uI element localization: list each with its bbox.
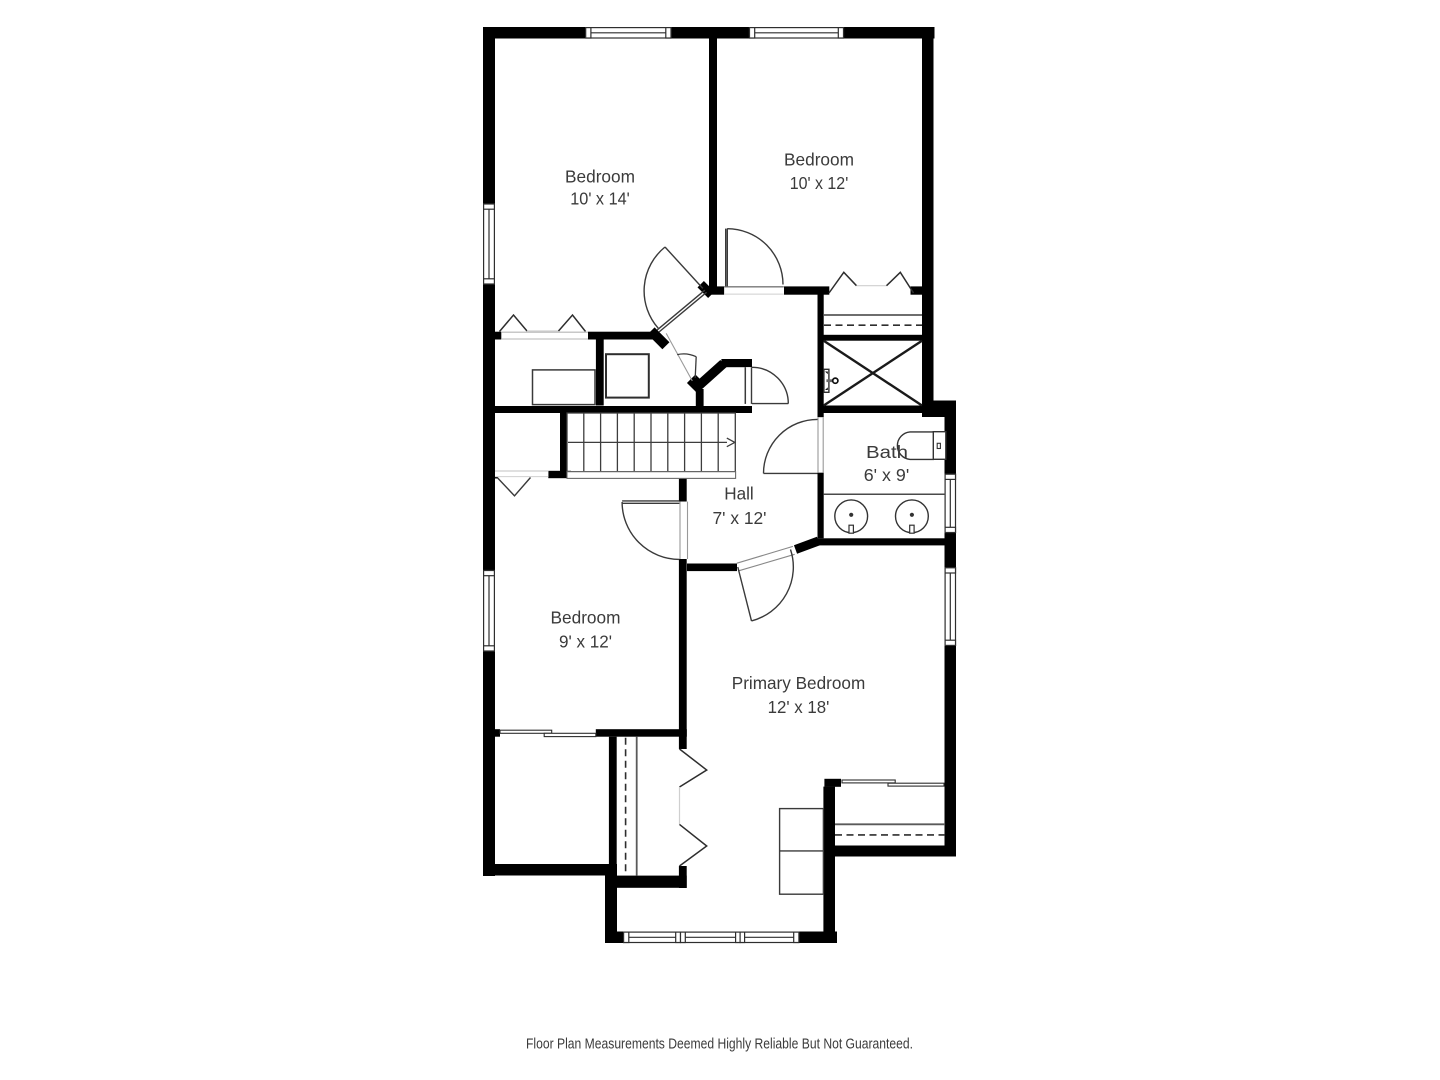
svg-text:Hall: Hall: [724, 484, 754, 504]
svg-text:Primary Bedroom: Primary Bedroom: [732, 673, 866, 693]
svg-text:Bath: Bath: [866, 442, 908, 462]
svg-text:Bedroom: Bedroom: [565, 167, 635, 187]
svg-text:Floor Plan Measurements Deemed: Floor Plan Measurements Deemed Highly Re…: [526, 1036, 913, 1053]
svg-text:6' x 9': 6' x 9': [864, 465, 910, 485]
svg-text:Bedroom: Bedroom: [784, 150, 854, 170]
svg-text:9' x 12': 9' x 12': [559, 632, 612, 652]
svg-text:Bedroom: Bedroom: [551, 608, 621, 628]
svg-text:7' x 12': 7' x 12': [713, 508, 767, 528]
svg-text:10' x 12': 10' x 12': [790, 173, 849, 193]
svg-text:10' x 14': 10' x 14': [570, 189, 630, 209]
svg-text:12' x 18': 12' x 18': [768, 697, 830, 717]
